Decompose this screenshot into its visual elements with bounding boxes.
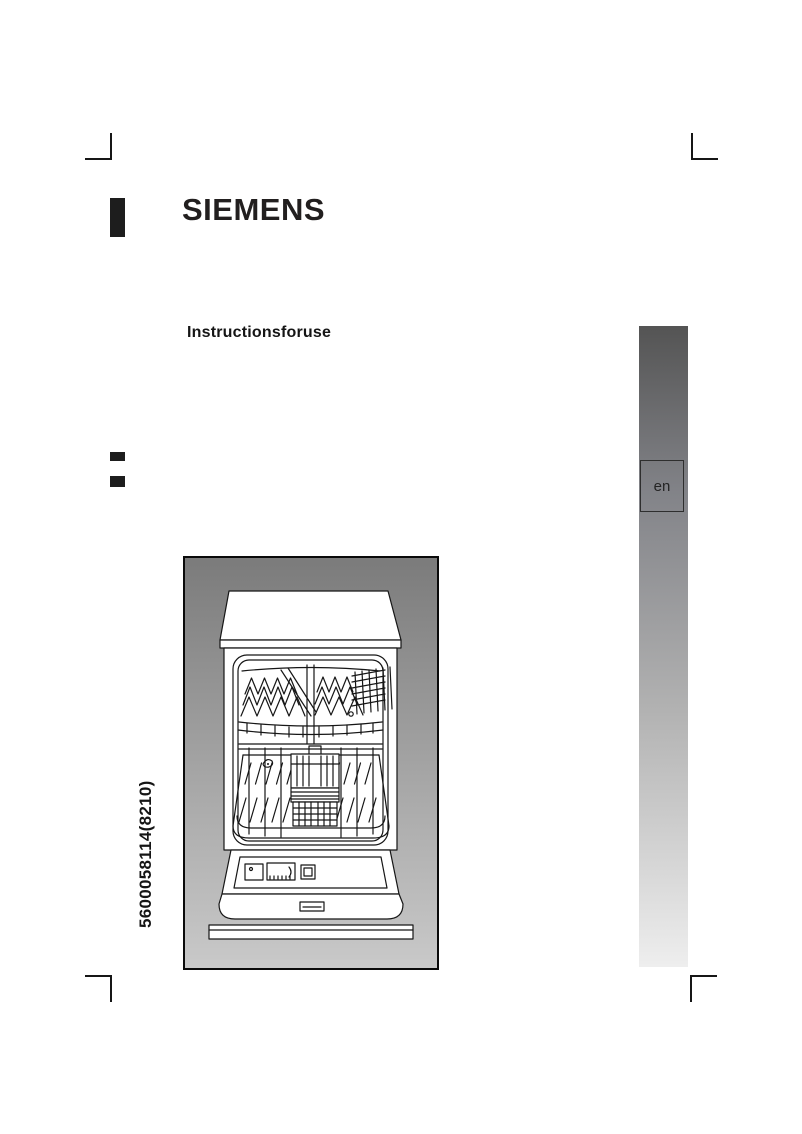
crop-mark-bottom-right xyxy=(690,975,717,1002)
figure-frame xyxy=(183,556,439,970)
dw-door-front xyxy=(219,894,403,919)
dw-plinth xyxy=(209,925,413,939)
logo-accent-bar xyxy=(110,198,125,237)
brand-wordmark: SIEMENS xyxy=(182,192,325,228)
part-number: 5600058114(8210) xyxy=(136,770,160,938)
registration-tick-2 xyxy=(110,476,125,487)
registration-tick-1 xyxy=(110,452,125,461)
language-tab: en xyxy=(640,460,684,512)
document-title: Instructionsforuse xyxy=(187,324,331,342)
dw-cutlery-basket xyxy=(291,746,339,826)
language-gradient-bar: en xyxy=(639,326,688,967)
dw-dispenser xyxy=(245,863,315,880)
dishwasher-illustration xyxy=(185,558,437,968)
manual-cover-page: { "document": { "brand": "SIEMENS", "tit… xyxy=(0,0,802,1134)
language-code: en xyxy=(654,478,671,495)
crop-mark-top-right xyxy=(691,133,718,160)
crop-mark-top-left xyxy=(85,133,112,160)
dw-inner-door xyxy=(222,850,399,894)
crop-mark-bottom-left xyxy=(85,975,112,1002)
dw-top-panel xyxy=(220,591,401,648)
